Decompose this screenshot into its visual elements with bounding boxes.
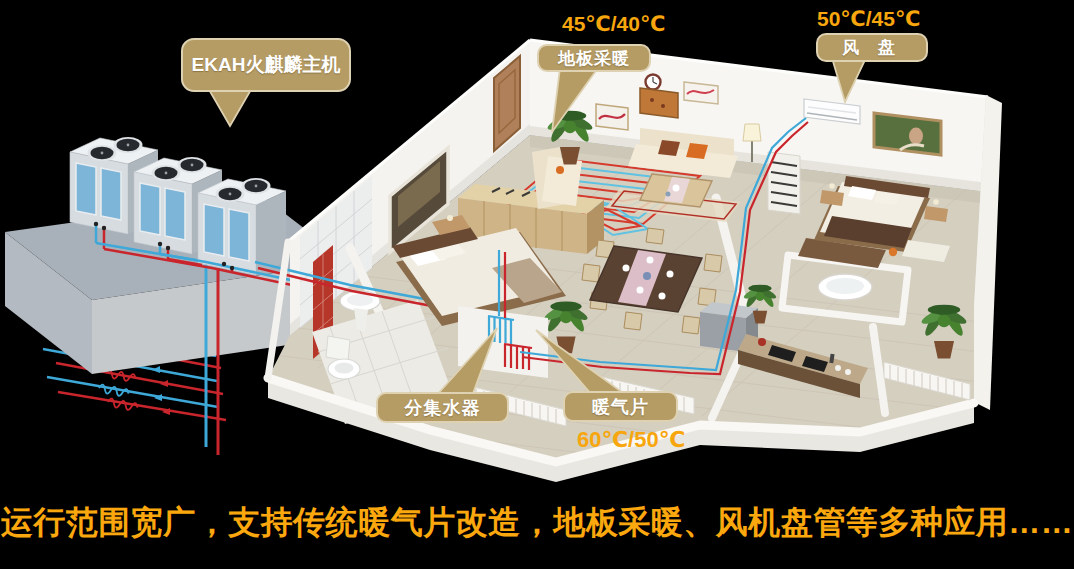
fan-coil-temperature: 50℃/45℃ bbox=[817, 7, 920, 31]
tail-main-unit bbox=[208, 88, 252, 126]
fan-coil-label: 风 盘 bbox=[842, 36, 902, 59]
hvac-system-diagram: EKAH火麒麟主机 地板采暖 风 盘 分集水器 暖气片 45℃/40℃ 50℃/… bbox=[0, 0, 1074, 569]
portrait-picture bbox=[874, 113, 941, 155]
label-bubble-fan-coil: 风 盘 bbox=[816, 33, 928, 62]
label-bubble-radiator: 暖气片 bbox=[563, 391, 678, 422]
floor-heating-temperature: 45℃/40℃ bbox=[562, 12, 665, 36]
radiator-temperature: 60℃/50℃ bbox=[577, 427, 685, 453]
radiator-label: 暖气片 bbox=[592, 395, 649, 419]
apartment-cutaway-illustration bbox=[0, 0, 1074, 569]
main-unit-label: EKAH火麒麟主机 bbox=[192, 52, 341, 78]
manifold-label: 分集水器 bbox=[405, 396, 481, 420]
wall-clock bbox=[646, 75, 661, 90]
label-bubble-main-unit: EKAH火麒麟主机 bbox=[181, 38, 351, 92]
basketball bbox=[889, 248, 897, 256]
bathroom-2 bbox=[818, 274, 872, 300]
caption-text: 运行范围宽广，支持传统暖气片改造，地板采暖、风机盘管等多种应用…… bbox=[0, 501, 1074, 545]
heat-pump-unit bbox=[198, 178, 286, 275]
floor-heating-label: 地板采暖 bbox=[558, 47, 630, 70]
art-frame-floral bbox=[640, 88, 678, 118]
label-bubble-manifold: 分集水器 bbox=[376, 392, 509, 423]
art-frame-red-right bbox=[684, 82, 718, 104]
label-bubble-floor-heating: 地板采暖 bbox=[537, 44, 651, 72]
art-frame-red-left bbox=[596, 104, 628, 130]
